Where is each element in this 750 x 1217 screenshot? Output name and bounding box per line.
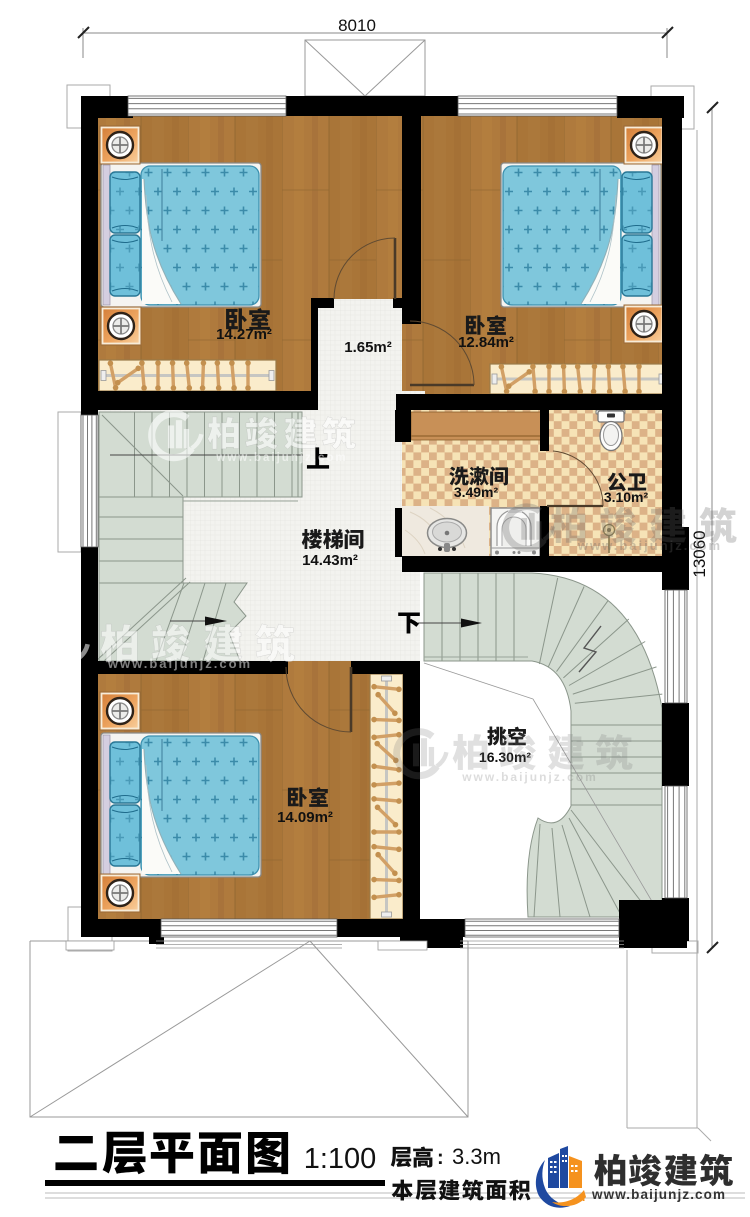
svg-text:3.49m²: 3.49m² [454,484,499,500]
svg-text:14.27m²: 14.27m² [216,326,272,343]
svg-text:1:100: 1:100 [304,1143,377,1175]
svg-text:1.65m²: 1.65m² [344,339,392,356]
svg-text:14.09m²: 14.09m² [277,809,333,826]
svg-text:www.baijunjz.com: www.baijunjz.com [461,770,598,784]
svg-text:www.baijunjz.com: www.baijunjz.com [107,656,252,671]
svg-text:www.baijunjz.com: www.baijunjz.com [577,538,722,553]
svg-text:www.baijunjz.com: www.baijunjz.com [591,1187,726,1202]
svg-text:www.baijunjz.com: www.baijunjz.com [215,452,347,464]
svg-text::: : [437,1147,444,1169]
svg-text:3.10m²: 3.10m² [604,489,649,505]
svg-text:14.43m²: 14.43m² [302,552,358,569]
svg-text:r.: r. [578,1190,585,1204]
svg-text:12.84m²: 12.84m² [458,334,514,351]
svg-text:8010: 8010 [338,16,376,35]
svg-text:3.3m: 3.3m [452,1144,501,1169]
